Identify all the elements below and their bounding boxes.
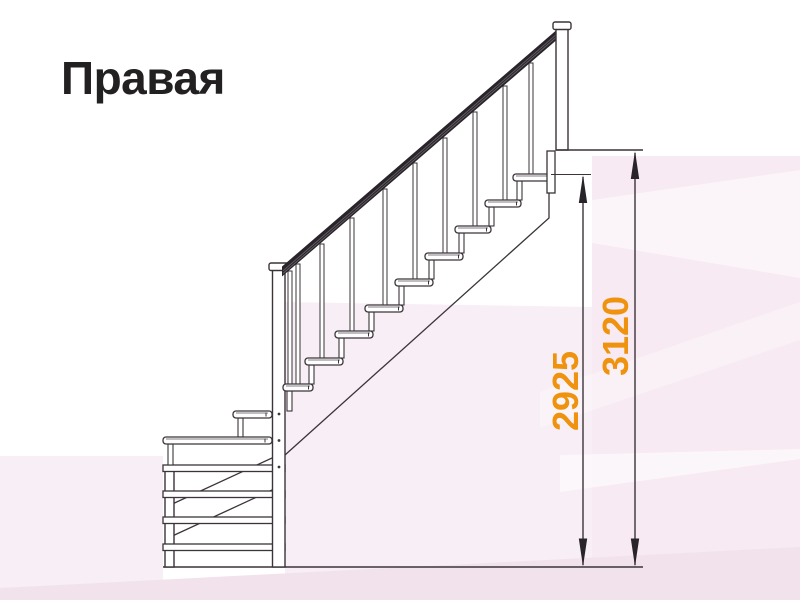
baluster xyxy=(296,264,300,384)
riser-support xyxy=(168,444,173,465)
tread xyxy=(425,253,463,260)
baluster xyxy=(383,189,387,305)
baluster xyxy=(288,271,292,384)
dimension-label-3120: 3120 xyxy=(598,296,634,376)
winder-rail xyxy=(163,517,285,524)
winder-section xyxy=(163,411,285,567)
background-watermark xyxy=(0,156,800,600)
floor-fascia-board xyxy=(547,151,555,193)
top-post xyxy=(556,29,568,150)
riser-support xyxy=(489,207,494,226)
top-post-cap xyxy=(553,22,571,30)
tread xyxy=(513,174,551,181)
baluster xyxy=(473,112,477,226)
dimension-arrow-up-icon xyxy=(579,175,587,203)
tread xyxy=(365,305,403,312)
winder-rails xyxy=(163,465,285,551)
riser-support xyxy=(287,391,292,411)
winder-tread xyxy=(163,437,272,444)
baluster xyxy=(529,63,533,174)
winder-rail xyxy=(163,491,285,498)
page-title: Правая xyxy=(61,55,225,101)
riser-support xyxy=(459,233,464,253)
tread xyxy=(305,358,343,365)
tread xyxy=(485,200,521,207)
baluster xyxy=(443,138,447,253)
dimension-label-2925: 2925 xyxy=(548,351,584,431)
riser-support xyxy=(429,260,434,279)
tread xyxy=(335,331,373,338)
riser-support xyxy=(339,338,344,358)
winder-rail xyxy=(163,465,285,472)
riser-support xyxy=(238,418,243,437)
tread xyxy=(395,279,433,286)
newel-post xyxy=(269,263,289,567)
drawing-canvas: Правая 2925 3120 xyxy=(0,0,800,600)
winder-rail xyxy=(163,544,285,551)
handrail xyxy=(282,31,556,277)
riser-support xyxy=(369,312,374,331)
baluster xyxy=(320,244,324,358)
bolt-dot xyxy=(278,413,281,416)
bolt-dot xyxy=(278,466,281,469)
riser-support xyxy=(399,286,404,305)
tread xyxy=(455,226,491,233)
baluster xyxy=(413,163,417,279)
baluster xyxy=(350,218,354,331)
baluster xyxy=(503,86,507,200)
riser-support xyxy=(309,365,314,384)
bolt-dot xyxy=(278,439,281,442)
riser-support xyxy=(517,181,522,200)
